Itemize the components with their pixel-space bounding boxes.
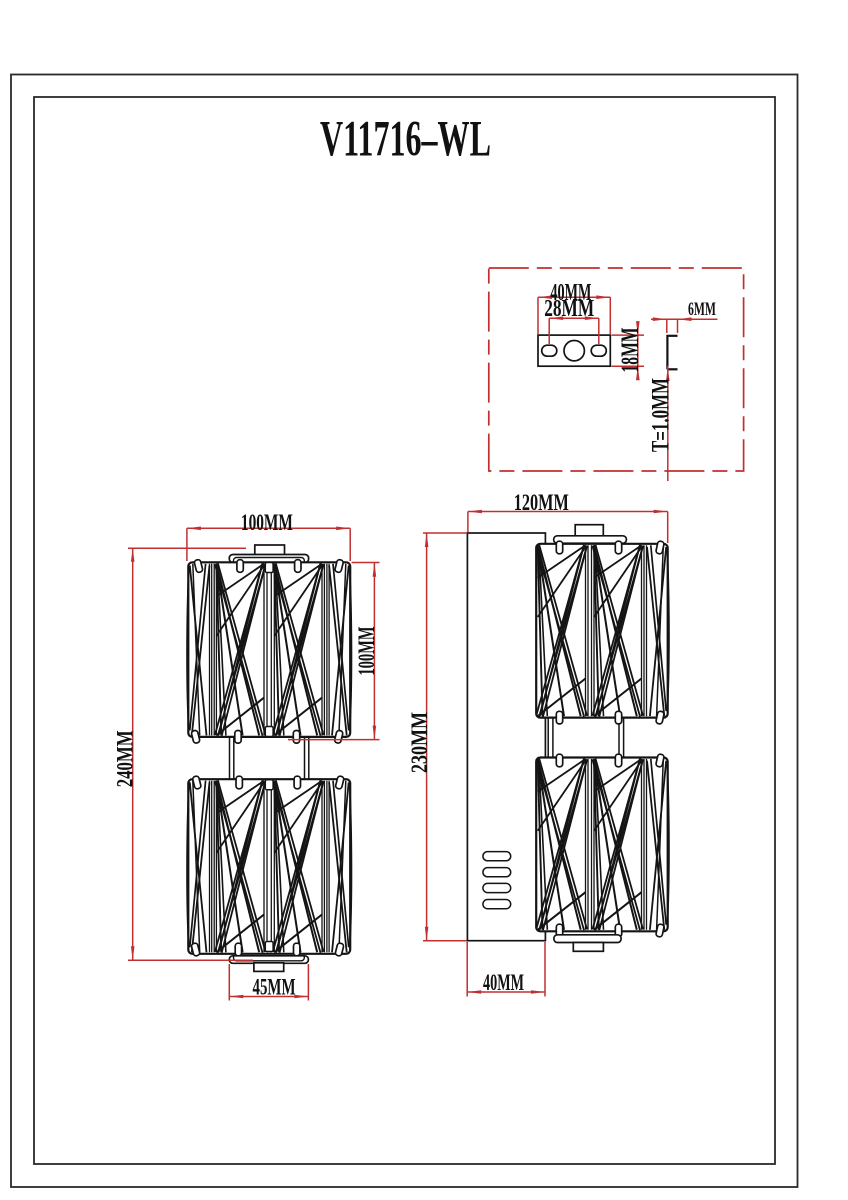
svg-text:40MM: 40MM bbox=[483, 970, 524, 996]
svg-text:45MM: 45MM bbox=[253, 975, 296, 1001]
svg-text:230MM: 230MM bbox=[407, 712, 433, 773]
svg-text:18MM: 18MM bbox=[615, 328, 644, 373]
svg-text:100MM: 100MM bbox=[354, 627, 380, 676]
svg-text:T=1.0MM: T=1.0MM bbox=[647, 378, 674, 452]
svg-text:120MM: 120MM bbox=[514, 490, 569, 516]
svg-text:28MM: 28MM bbox=[544, 296, 594, 322]
svg-text:6MM: 6MM bbox=[688, 299, 716, 320]
svg-text:100MM: 100MM bbox=[241, 510, 293, 536]
svg-text:240MM: 240MM bbox=[112, 730, 138, 787]
svg-text:V11716–WL: V11716–WL bbox=[320, 112, 491, 168]
